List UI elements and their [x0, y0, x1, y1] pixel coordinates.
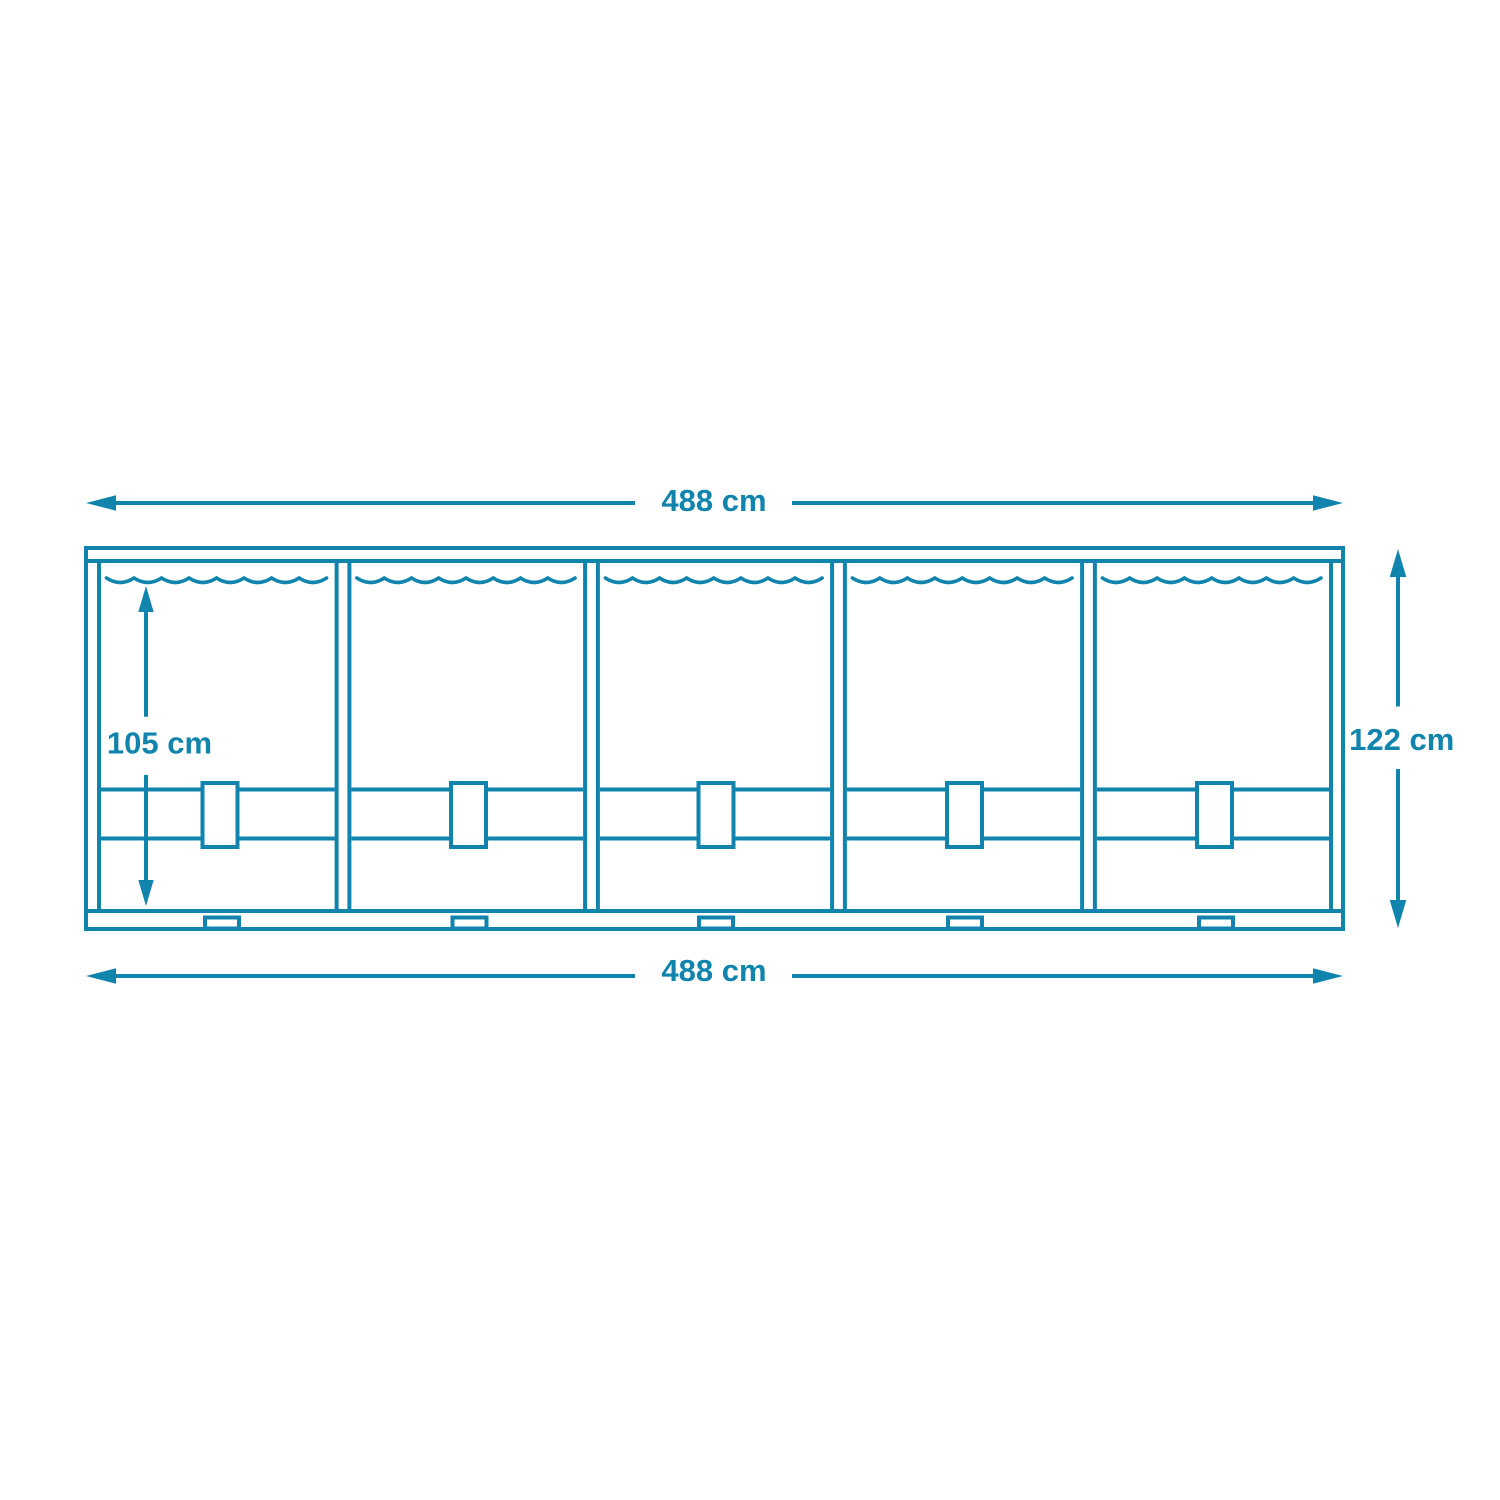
- svg-text:488 cm: 488 cm: [661, 483, 766, 518]
- svg-text:122 cm: 122 cm: [1349, 722, 1454, 757]
- svg-text:488 cm: 488 cm: [661, 953, 766, 988]
- svg-text:105 cm: 105 cm: [107, 726, 212, 761]
